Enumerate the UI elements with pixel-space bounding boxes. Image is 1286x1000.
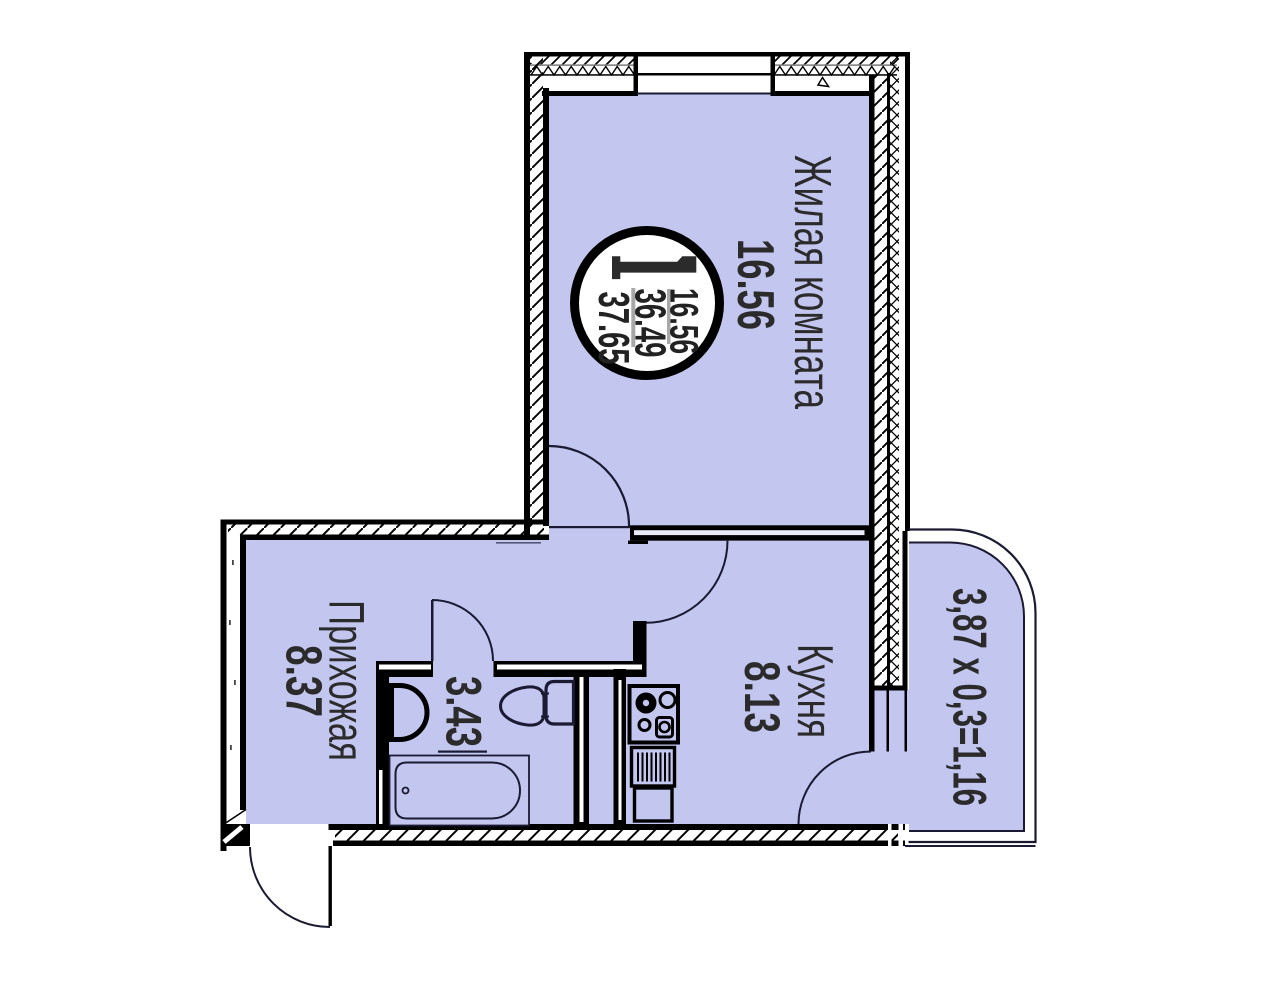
svg-text:16.56: 16.56 [726, 239, 784, 330]
svg-text:3.43: 3.43 [435, 676, 491, 747]
svg-text:8.13: 8.13 [734, 661, 790, 733]
svg-text:Жилая комната: Жилая комната [783, 155, 841, 409]
svg-text:Кухня: Кухня [787, 644, 843, 738]
svg-text:37.65: 37.65 [589, 292, 638, 365]
svg-text:3,87 x 0,3=1,16: 3,87 x 0,3=1,16 [944, 588, 997, 806]
svg-text:8.37: 8.37 [275, 645, 332, 717]
